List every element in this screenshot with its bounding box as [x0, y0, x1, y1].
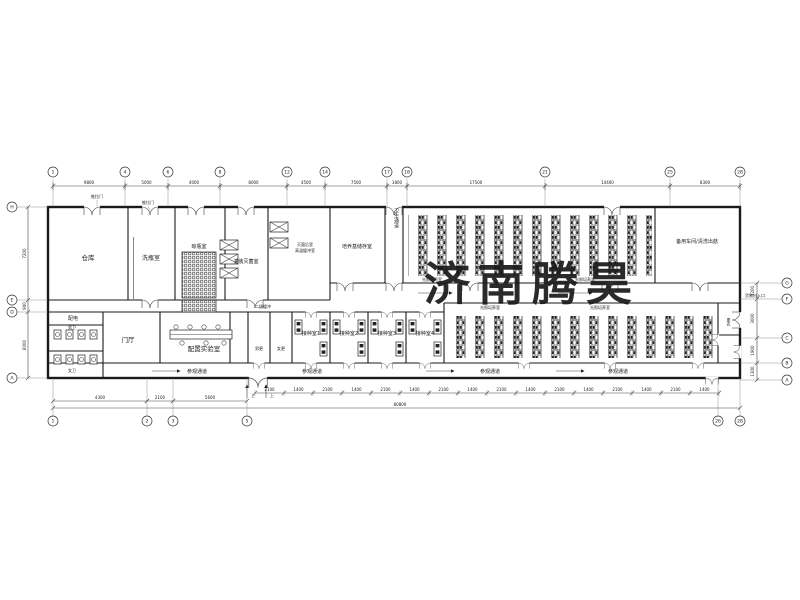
dim-value: 4300 [95, 395, 106, 400]
dim-value: 2100 [612, 387, 623, 392]
floor-plan-drawing: 仓库 洗瓶室 晾瓶室 灌装灭菌室 灭菌后室 高温缓冲室 培养基储存室 卫生通道 … [0, 0, 800, 600]
room-label-secondary-buffer: 二级缓冲 [255, 303, 271, 309]
grid-bubble-label: 5 [246, 419, 249, 425]
grid-bubble-label: C [785, 336, 788, 342]
dim-value: 1400 [699, 387, 710, 392]
grid-bubble-label: 18 [404, 170, 410, 176]
room-label-inoculation-1: 接种室1 [302, 330, 320, 337]
pass-through [270, 222, 288, 232]
dim-value: 14400 [601, 180, 614, 185]
dim-value: 1400 [583, 387, 594, 392]
dim-value: 2100 [155, 395, 166, 400]
corridor-label-2: 参观通道 [302, 368, 322, 375]
sliding-door-note-1: 推拉门 [91, 193, 103, 199]
room-label-bottle-drying: 晾瓶室 [191, 243, 206, 250]
grid-bubble-label: G [785, 281, 789, 287]
grid-bubble-label: 26 [715, 419, 721, 425]
room-label-mens-wc: 男卫 [68, 325, 76, 330]
watermark-text: 济南腾昊 [424, 257, 640, 311]
room-label-high-temp-buffer: 高温缓冲室 [295, 247, 315, 253]
dim-value: 2100 [380, 387, 391, 392]
grid-bubble-label: 2 [146, 419, 149, 425]
dim-value: 2100 [322, 387, 333, 392]
grid-bubble-label: D [10, 310, 14, 316]
dim-value: 6000 [22, 339, 27, 350]
grid-bubble-label: 8 [219, 170, 222, 176]
grid-bubble-label: E [11, 298, 14, 304]
dim-value: 2100 [670, 387, 681, 392]
grid-bubble-label: 12 [284, 170, 290, 176]
dim-value: 3000 [750, 313, 755, 324]
dim-value: 4000 [189, 180, 200, 185]
room-label-inoculation-2: 接种室2 [340, 330, 358, 337]
dim-value: 1900 [750, 345, 755, 356]
dim-value: 2100 [438, 387, 449, 392]
dim-value: 1400 [351, 387, 362, 392]
dim-value: 7500 [351, 180, 362, 185]
grid-bubble-label: B [785, 361, 788, 367]
sliding-door-note-2: 推拉门 [142, 199, 154, 205]
dim-value: 1400 [293, 387, 304, 392]
dim-value: 5000 [141, 180, 152, 185]
dim-value: 2100 [496, 387, 507, 392]
room-label-changing: 更衣 [727, 318, 732, 327]
dim-value: 1800 [392, 180, 403, 185]
pass-through [270, 238, 288, 248]
corridor-label-3: 参观通道 [480, 368, 500, 375]
grid-bubble-label: 6 [167, 170, 170, 176]
grid-bubble-label: 3 [172, 419, 175, 425]
room-label-inoculation-3: 接种室3 [378, 330, 396, 337]
grid-bubble-label: 1 [52, 419, 55, 425]
room-label-entrance-hall: 门厅 [122, 335, 136, 344]
grid-bubble-label: 4 [124, 170, 127, 176]
grid-bubble-label: H [10, 205, 13, 211]
dim-value: 2100 [554, 387, 565, 392]
shelf [125, 237, 134, 299]
grid-bubble-label: 25 [667, 170, 673, 176]
room-label-womens-changing: 女更 [277, 345, 285, 351]
dim-value: 1300 [750, 366, 755, 377]
room-label-filling-sterilization: 灌装灭菌室 [233, 258, 258, 265]
room-label-sanitary-passage: 卫生通道 [393, 208, 399, 229]
room-label-medium-storage: 培养基储存室 [342, 243, 372, 250]
cargo-entrance-note: 货物出入口 [745, 292, 765, 298]
room-label-prep-lab: 配置实验室 [188, 344, 221, 353]
room-label-spare-workshop: 备用车间/清洗出菇 [676, 238, 718, 245]
hatched-block [182, 252, 216, 298]
dim-value: 2100 [264, 387, 275, 392]
room-label-bottle-washing: 洗瓶室 [142, 254, 160, 262]
grid-bubble-label: 14 [322, 170, 328, 176]
room-label-warehouse: 仓库 [82, 253, 96, 262]
dim-value: 17500 [470, 180, 483, 185]
dim-value: 4500 [301, 180, 312, 185]
dim-value: 8300 [700, 180, 711, 185]
room-label-inoculation-4: 接种室4 [416, 330, 434, 337]
room-label-post-sterilization: 灭菌后室 [297, 241, 313, 247]
dim-value: 1400 [641, 387, 652, 392]
dim-value: 5600 [205, 395, 216, 400]
grid-bubble-label: 28 [737, 170, 743, 176]
floor-plan-page: 仓库 洗瓶室 晾瓶室 灌装灭菌室 灭菌后室 高温缓冲室 培养基储存室 卫生通道 … [0, 0, 800, 600]
corridor-label-1: 参观通道 [187, 368, 207, 375]
dim-value: 1400 [467, 387, 478, 392]
dim-value: 1200 [750, 285, 755, 296]
dim-value: 80800 [394, 402, 407, 407]
room-label-power: 配电 [68, 315, 78, 322]
sterilizer [220, 268, 238, 278]
dim-value: 9800 [84, 180, 95, 185]
dim-value: 900 [22, 302, 27, 310]
room-label-womens-wc: 女卫 [68, 367, 76, 373]
dim-value: 8000 [248, 180, 259, 185]
dim-value: 1400 [409, 387, 420, 392]
grid-bubble-label: 17 [384, 170, 390, 176]
grid-bubble-label: 28 [737, 419, 743, 425]
grid-bubble-label: F [786, 297, 789, 303]
grid-bubble-label: 1 [52, 170, 55, 176]
rack-array-lower [450, 316, 716, 358]
dim-value: 1400 [525, 387, 536, 392]
room-label-mens-changing: 男更 [255, 346, 263, 351]
dim-value: 7200 [22, 248, 27, 259]
grid-bubble-label: 21 [542, 170, 548, 176]
sterilizer [220, 240, 238, 250]
hatched-block-2 [182, 300, 216, 312]
corridor-label-4: 参观通道 [608, 368, 628, 375]
